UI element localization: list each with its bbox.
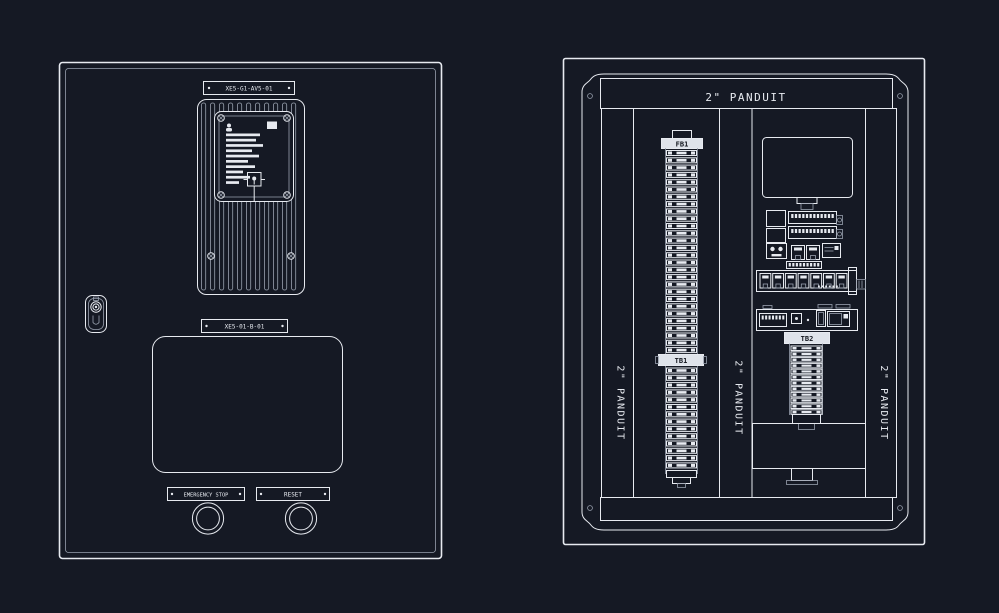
terminal-screw xyxy=(668,225,672,228)
connector-pin xyxy=(832,214,834,218)
switch-label-dot xyxy=(825,286,827,288)
terminal-marker xyxy=(677,457,687,460)
cad-drawing-canvas: XE5-G1-AV5-01 xyxy=(0,0,999,613)
terminal-connector xyxy=(760,314,787,327)
terminal-screw xyxy=(691,283,695,286)
din-rail-end-cap xyxy=(673,131,692,139)
module-detail xyxy=(835,246,839,250)
terminal-marker xyxy=(677,450,687,453)
terminal-marker xyxy=(677,196,687,199)
terminal-marker xyxy=(802,405,812,407)
terminal-screw xyxy=(691,152,695,155)
terminal-screw xyxy=(691,261,695,264)
terminal-screw xyxy=(691,173,695,176)
right-terminal-strip: TB2 xyxy=(785,333,830,430)
terminal-screw xyxy=(668,159,672,162)
power-distribution-module xyxy=(757,305,858,331)
door-latch xyxy=(86,296,107,333)
ethernet-port-notch xyxy=(763,284,767,288)
ethernet-port-pins xyxy=(762,276,768,279)
terminal-marker xyxy=(677,442,687,445)
power-supply-body xyxy=(753,424,866,469)
nameplate-fastener-icon xyxy=(208,87,210,89)
terminal-marker xyxy=(677,377,687,380)
terminal-screw xyxy=(668,398,672,401)
terminal-marker xyxy=(677,349,687,352)
connector-pin xyxy=(810,263,812,267)
latch-lock-icon xyxy=(95,306,97,308)
terminal-screw xyxy=(691,457,695,460)
module-detail xyxy=(818,305,832,309)
terminal-screw xyxy=(691,181,695,184)
screen-text-line xyxy=(226,176,250,179)
screw-icon xyxy=(218,192,225,199)
terminal-screw xyxy=(691,225,695,228)
connector-pin xyxy=(813,229,815,233)
terminal-screw xyxy=(691,449,695,452)
terminal-marker xyxy=(802,411,812,413)
button-cap xyxy=(290,507,313,530)
terminal-marker xyxy=(677,174,687,177)
connector-pin xyxy=(799,263,801,267)
indicator-dot-icon xyxy=(795,317,798,320)
terminal-marker xyxy=(677,247,687,250)
terminal-screw xyxy=(691,369,695,372)
connector-pin xyxy=(817,263,819,267)
nameplate-fastener-icon xyxy=(205,325,207,327)
terminal-screw xyxy=(817,347,821,350)
duct-label: 2" PANDUIT xyxy=(615,365,626,440)
terminal-marker xyxy=(677,342,687,345)
nameplate-text: XE5-G1-AV5-01 xyxy=(226,86,273,93)
panel-mounting-hole-icon xyxy=(588,94,593,99)
terminal-screw xyxy=(668,391,672,394)
connector-pin xyxy=(789,263,791,267)
nameplate-fastener-icon xyxy=(260,493,262,495)
cad-drawing: XE5-G1-AV5-01 xyxy=(0,0,999,613)
terminal-screw xyxy=(668,276,672,279)
terminal-screw xyxy=(668,232,672,235)
terminal-screw xyxy=(691,276,695,279)
terminal-marker xyxy=(802,353,812,355)
terminal-screw xyxy=(817,399,821,402)
duct-label: 2" PANDUIT xyxy=(878,365,889,440)
right-device-column: TB2 xyxy=(753,138,866,485)
connector-pin xyxy=(828,229,830,233)
device-tag-text: TB1 xyxy=(675,357,688,365)
terminal-screw xyxy=(668,166,672,169)
terminal-marker xyxy=(677,225,687,228)
bottom-panduit-duct xyxy=(601,498,893,521)
connector-pin xyxy=(817,214,819,218)
terminal-screw xyxy=(793,353,797,356)
door-nameplate-top: XE5-G1-AV5-01 xyxy=(204,82,295,95)
nameplate-text: EMERGENCY STOP xyxy=(184,492,229,498)
screen-text-line xyxy=(226,160,248,163)
terminal-screw xyxy=(668,305,672,308)
usb-icon xyxy=(252,177,256,181)
middle-panduit-duct xyxy=(720,109,753,498)
window-cutout xyxy=(153,337,343,473)
terminal-marker xyxy=(677,166,687,169)
terminal-screw xyxy=(691,341,695,344)
terminal-screw xyxy=(691,334,695,337)
terminal-screw xyxy=(793,359,797,362)
device-tag-text: TB2 xyxy=(801,335,814,343)
switch-label-dots xyxy=(818,286,838,288)
din-rail-end-cap xyxy=(799,424,815,430)
terminal-marker xyxy=(677,320,687,323)
ethernet-port-pins xyxy=(813,276,819,279)
screen-text-line xyxy=(226,155,259,158)
terminal-screw xyxy=(668,210,672,213)
terminal-marker xyxy=(677,420,687,423)
screw-icon xyxy=(288,253,295,260)
terminal-marker xyxy=(802,359,812,361)
terminal-screw xyxy=(668,427,672,430)
terminal-marker xyxy=(677,188,687,191)
device-tag-text: FB1 xyxy=(676,141,689,149)
terminal-screw xyxy=(691,210,695,213)
nameplate-fastener-icon xyxy=(171,493,173,495)
connector-pin xyxy=(824,229,826,233)
terminal-marker xyxy=(802,388,812,390)
connector-pin xyxy=(813,214,815,218)
connector-pins xyxy=(791,214,834,218)
terminal-screw xyxy=(691,398,695,401)
module-detail xyxy=(836,305,850,309)
duct-label: 2" PANDUIT xyxy=(733,360,744,435)
terminal-marker xyxy=(677,152,687,155)
front-door-view: XE5-G1-AV5-01 xyxy=(60,63,442,559)
connector-stub xyxy=(797,198,817,204)
ethernet-port-notch xyxy=(801,284,805,288)
terminal-marker xyxy=(677,181,687,184)
connector-pin xyxy=(799,229,801,233)
terminal-screw xyxy=(691,166,695,169)
terminal-screw xyxy=(691,420,695,423)
user-icon xyxy=(227,124,231,128)
terminal-screw xyxy=(691,427,695,430)
terminal-blocks xyxy=(791,346,822,414)
screw-icon xyxy=(218,115,225,122)
terminal-marker xyxy=(677,261,687,264)
mount-hole-icon xyxy=(838,218,842,222)
door-nameplate-mid: XE5-01-B-01 xyxy=(202,320,288,333)
terminal-screw xyxy=(668,349,672,352)
terminal-screw xyxy=(691,413,695,416)
terminal-screw xyxy=(793,382,797,385)
ethernet-jack-pins xyxy=(794,248,802,251)
terminal-screw xyxy=(817,411,821,414)
ethernet-port-pins xyxy=(775,276,781,279)
terminal-screw xyxy=(668,449,672,452)
terminal-blocks xyxy=(667,151,697,353)
connector-pin xyxy=(795,229,797,233)
terminal-marker xyxy=(677,398,687,401)
terminal-screw xyxy=(817,405,821,408)
connector-pin xyxy=(799,214,801,218)
terminal-screw xyxy=(691,239,695,242)
screen-text-line xyxy=(226,165,255,168)
terminal-screw xyxy=(691,268,695,271)
duct-label: 2" PANDUIT xyxy=(705,91,786,104)
screw-icon xyxy=(284,115,291,122)
switch-label-dot xyxy=(818,286,820,288)
latch-grip xyxy=(93,316,99,325)
connector-pin xyxy=(796,263,798,267)
connector-pins xyxy=(791,229,834,233)
terminal-screw xyxy=(793,364,797,367)
ethernet-port-pins xyxy=(800,276,806,279)
connector-pin xyxy=(824,214,826,218)
terminal-marker xyxy=(677,406,687,409)
connector-pin xyxy=(791,229,793,233)
connector-pin xyxy=(765,316,767,320)
ethernet-port-notch xyxy=(789,284,793,288)
terminal-screw xyxy=(691,254,695,257)
ethernet-jack-notch xyxy=(811,256,816,260)
terminal-screw xyxy=(691,188,695,191)
power-pin-icon xyxy=(778,247,782,251)
module-detail xyxy=(763,306,772,309)
enclosure-outline xyxy=(564,59,925,545)
back-panel-plate xyxy=(582,74,908,530)
terminal-marker xyxy=(677,334,687,337)
terminal-screw xyxy=(668,195,672,198)
terminal-screw xyxy=(668,239,672,242)
io-controller xyxy=(767,211,843,269)
din-rail-end-cap xyxy=(793,415,821,424)
hmi-rear-unit xyxy=(763,138,853,198)
mount-hole-icon xyxy=(838,232,842,236)
ethernet-port-pins xyxy=(788,276,794,279)
power-pin-icon xyxy=(772,254,782,256)
terminal-screw xyxy=(817,359,821,362)
terminal-screw xyxy=(691,232,695,235)
terminal-screw xyxy=(668,261,672,264)
terminal-screw xyxy=(817,382,821,385)
terminal-screw xyxy=(691,312,695,315)
status-box-icon xyxy=(267,122,277,130)
module-detail xyxy=(844,314,849,319)
panel-mounting-hole-icon xyxy=(898,94,903,99)
din-rail-end-cap xyxy=(678,484,686,488)
terminal-screw xyxy=(668,319,672,322)
terminal-screw xyxy=(668,327,672,330)
ethernet-jack-pins xyxy=(809,248,817,251)
nameplate-text: RESET xyxy=(284,492,302,499)
connector-pin xyxy=(762,316,764,320)
terminal-marker xyxy=(677,327,687,330)
terminal-marker xyxy=(677,210,687,213)
connector-pin xyxy=(828,214,830,218)
terminal-marker xyxy=(802,399,812,401)
terminal-screw xyxy=(668,268,672,271)
terminal-screw xyxy=(668,334,672,337)
terminal-screw xyxy=(668,217,672,220)
connector-pin xyxy=(779,316,781,320)
terminal-screw xyxy=(668,181,672,184)
side-module-inner xyxy=(830,314,842,325)
screen-text-line xyxy=(226,139,256,142)
screw-icon xyxy=(284,192,291,199)
terminal-screw xyxy=(668,283,672,286)
terminal-screw xyxy=(668,203,672,206)
terminal-screw xyxy=(691,384,695,387)
terminal-screw xyxy=(668,246,672,249)
terminal-marker xyxy=(677,312,687,315)
terminal-screw xyxy=(817,364,821,367)
reset-nameplate: RESET xyxy=(257,488,330,501)
button-cap xyxy=(197,507,220,530)
terminal-screw xyxy=(793,393,797,396)
louver-slot xyxy=(202,103,206,290)
terminal-screw xyxy=(817,370,821,373)
terminal-screw xyxy=(817,393,821,396)
terminal-screw xyxy=(691,391,695,394)
terminal-screw xyxy=(668,420,672,423)
terminal-screw xyxy=(668,369,672,372)
terminal-screw xyxy=(793,376,797,379)
din-rail-end-cap xyxy=(673,478,691,484)
terminal-marker xyxy=(677,203,687,206)
terminal-screw xyxy=(668,298,672,301)
terminal-marker xyxy=(802,370,812,372)
estop-button xyxy=(192,503,223,534)
terminal-screw xyxy=(817,376,821,379)
back-panel-view: 2" PANDUIT 2" PANDUIT 2" PANDUIT 2" PAND… xyxy=(564,59,925,545)
power-supply xyxy=(753,424,866,485)
connector-pin xyxy=(803,263,805,267)
user-icon xyxy=(226,128,232,132)
terminal-screw xyxy=(691,327,695,330)
terminal-screw xyxy=(668,376,672,379)
terminal-screw xyxy=(668,290,672,293)
power-pin-icon xyxy=(770,247,774,251)
switch-end-cap xyxy=(849,268,857,295)
nameplate-text: XE5-01-B-01 xyxy=(225,324,265,331)
terminal-screw xyxy=(793,399,797,402)
connector-pin xyxy=(832,229,834,233)
terminal-screw xyxy=(668,341,672,344)
terminal-marker xyxy=(802,365,812,367)
terminal-screw xyxy=(668,254,672,257)
terminal-marker xyxy=(677,269,687,272)
terminal-screw xyxy=(691,376,695,379)
terminal-screw xyxy=(691,246,695,249)
terminal-screw xyxy=(793,347,797,350)
connector-pin xyxy=(795,214,797,218)
terminal-marker xyxy=(802,347,812,349)
left-terminal-strip: FB1 TB1 xyxy=(656,131,707,488)
mount-foot xyxy=(792,469,813,481)
terminal-screw xyxy=(668,173,672,176)
terminal-marker xyxy=(677,464,687,467)
terminal-screw xyxy=(691,435,695,438)
side-module xyxy=(823,244,841,258)
switch-label-dot xyxy=(832,286,834,288)
terminal-screw xyxy=(817,388,821,391)
ethernet-switch xyxy=(757,268,866,295)
side-module-inner xyxy=(819,313,824,325)
screen-text-line xyxy=(226,144,263,147)
ethernet-port-pins xyxy=(826,276,832,279)
indicator-dot-icon xyxy=(807,319,809,321)
terminal-screw xyxy=(668,312,672,315)
ethernet-port-notch xyxy=(776,284,780,288)
terminal-screw xyxy=(668,152,672,155)
connector-pin xyxy=(806,214,808,218)
nameplate-fastener-icon xyxy=(324,493,326,495)
terminal-screw xyxy=(668,188,672,191)
terminal-screw xyxy=(691,349,695,352)
ethernet-jack-notch xyxy=(796,256,801,260)
connector-pin xyxy=(817,229,819,233)
terminal-marker xyxy=(677,290,687,293)
terminal-marker xyxy=(802,394,812,396)
screen-text-line xyxy=(226,181,239,184)
terminal-screw xyxy=(691,159,695,162)
terminal-screw xyxy=(691,298,695,301)
nameplate-fastener-icon xyxy=(239,493,241,495)
terminal-marker xyxy=(802,382,812,384)
terminal-screw xyxy=(793,411,797,414)
terminal-screw xyxy=(668,413,672,416)
terminal-marker xyxy=(677,276,687,279)
connector-pin xyxy=(775,316,777,320)
terminal-marker xyxy=(677,239,687,242)
terminal-marker xyxy=(677,435,687,438)
terminal-screw xyxy=(691,290,695,293)
terminal-marker xyxy=(677,391,687,394)
terminal-screw xyxy=(793,405,797,408)
switch-extension xyxy=(857,280,866,290)
terminal-screw xyxy=(691,464,695,467)
connector-pin xyxy=(791,214,793,218)
terminal-screw xyxy=(668,457,672,460)
din-rail-end-cap xyxy=(667,471,697,478)
estop-nameplate: EMERGENCY STOP xyxy=(168,488,245,501)
terminal-screw xyxy=(668,435,672,438)
terminal-marker xyxy=(677,298,687,301)
connector-pin xyxy=(810,214,812,218)
switch-label-dot xyxy=(836,286,838,288)
panel-mounting-hole-icon xyxy=(588,506,593,511)
connector-pin xyxy=(782,316,784,320)
terminal-screw xyxy=(817,353,821,356)
connector-pin xyxy=(810,229,812,233)
connector-pin xyxy=(792,263,794,267)
terminal-screw xyxy=(691,217,695,220)
terminal-screw xyxy=(668,384,672,387)
reset-button xyxy=(285,503,316,534)
terminal-screw xyxy=(691,203,695,206)
terminal-marker xyxy=(677,305,687,308)
connector-stub xyxy=(801,204,813,210)
terminal-screw xyxy=(691,319,695,322)
latch-inner xyxy=(89,299,104,330)
ethernet-port-notch xyxy=(839,284,843,288)
terminal-marker xyxy=(677,232,687,235)
screen-text-line xyxy=(226,134,260,137)
connector-pins xyxy=(789,263,820,267)
terminal-marker xyxy=(677,428,687,431)
terminal-screw xyxy=(793,370,797,373)
screen-text-line xyxy=(226,171,243,174)
connector-pin xyxy=(802,214,804,218)
terminal-marker xyxy=(677,369,687,372)
